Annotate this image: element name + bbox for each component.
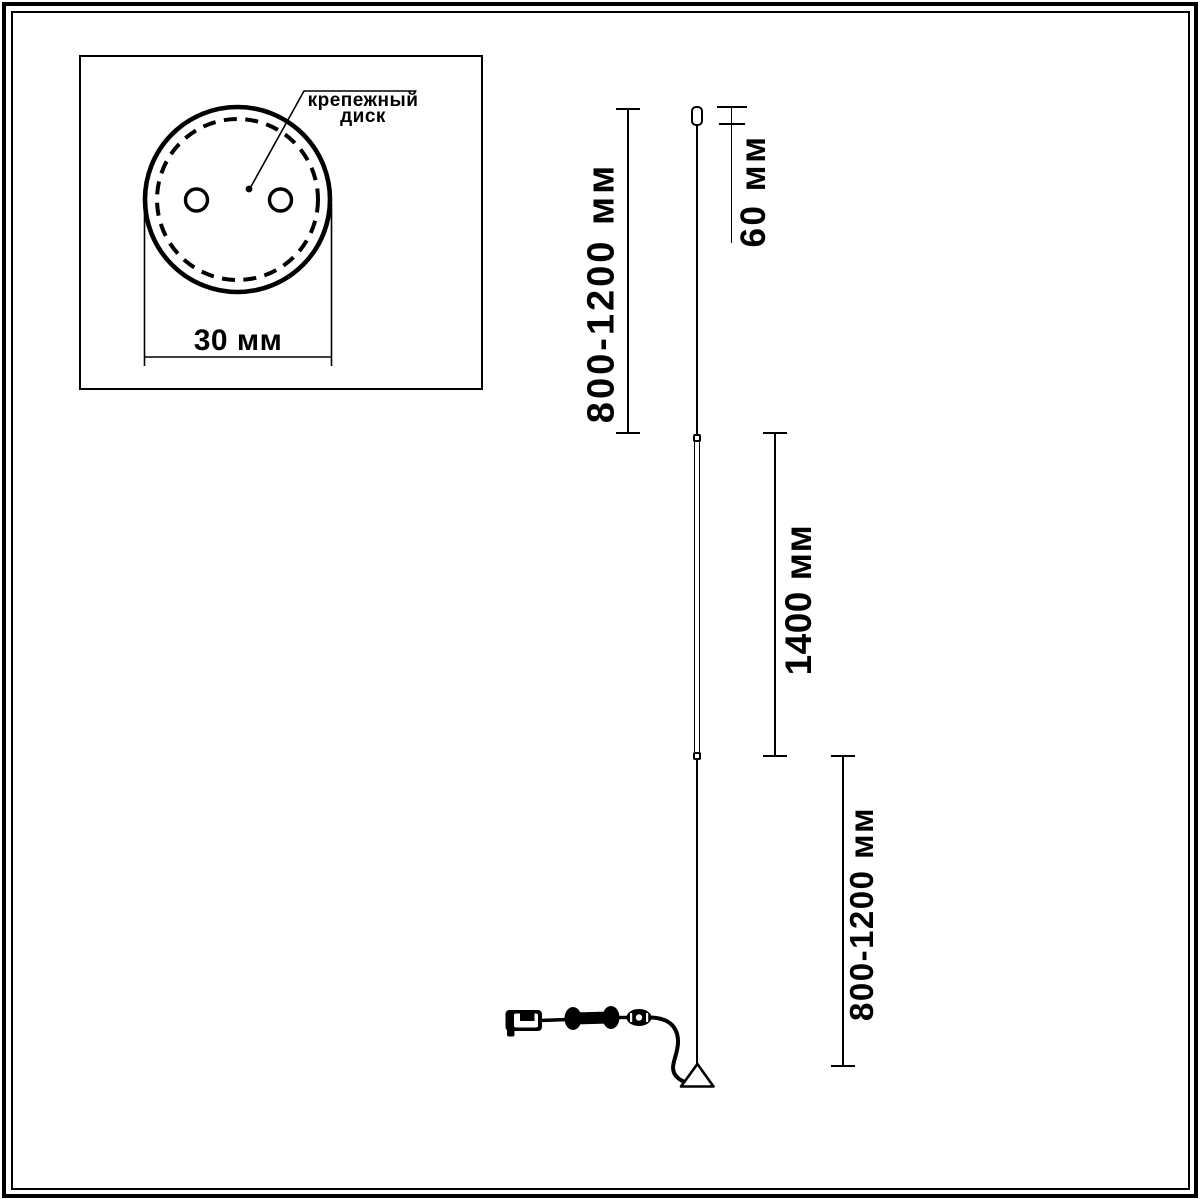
upper-suspension-cable: [696, 126, 698, 435]
switch-bar: [573, 1018, 611, 1019]
cord-curve-to-base: [651, 1018, 684, 1082]
dim-tube-tick-bottom: [763, 755, 788, 757]
ceiling-mount-connector: [691, 106, 702, 126]
mounting-disk-detail-panel: крепежный диск 30 мм: [79, 55, 483, 390]
connector-center: [636, 1014, 642, 1020]
installation-diagram: { "inset": { "label_line1": "крепежный",…: [0, 0, 1200, 1200]
disk-diameter-label: 30 мм: [168, 324, 308, 358]
power-plug: [506, 1010, 543, 1037]
dim-tube-tick-top: [763, 432, 788, 434]
screw-hole-right: [270, 189, 292, 211]
dim-upper-cable-label: 800-1200 мм: [581, 163, 624, 423]
mounting-disk-label: крепежный диск: [297, 93, 429, 125]
dim-mount-tick-bottom: [719, 123, 745, 125]
lower-tube-connector: [693, 752, 702, 761]
dim-tube-line: [774, 433, 776, 757]
cord-switch: [565, 1006, 620, 1030]
plug-detail: [520, 1014, 535, 1022]
dim-lower-cable-tick-bottom: [831, 1065, 856, 1067]
dim-tube-label: 1400 мм: [778, 525, 820, 676]
mounting-disk-outline: [145, 107, 330, 292]
mounting-disk-label-line2: диск: [297, 109, 429, 125]
upper-tube-connector: [693, 434, 702, 443]
connector-slit-left: [630, 1013, 632, 1022]
dim-mount-line: [731, 106, 733, 243]
connector-slit-right: [646, 1013, 648, 1022]
led-tube: [694, 442, 700, 752]
cord-connector: [627, 1009, 652, 1026]
screw-hole-left: [186, 189, 208, 211]
cord-segment-1: [540, 1020, 568, 1021]
dim-lower-cable-label: 800-1200 мм: [843, 807, 881, 1021]
dim-lower-cable-tick-top: [831, 755, 856, 757]
dim-upper-cable-tick-top: [616, 108, 641, 110]
plug-prong: [507, 1028, 515, 1037]
power-cord-assembly: [500, 1000, 700, 1095]
dim-mount-tick-top: [717, 106, 747, 108]
dim-upper-cable-tick-bottom: [616, 432, 641, 434]
dim-upper-cable-line: [627, 109, 629, 434]
dim-mount-label: 60 мм: [734, 134, 774, 247]
